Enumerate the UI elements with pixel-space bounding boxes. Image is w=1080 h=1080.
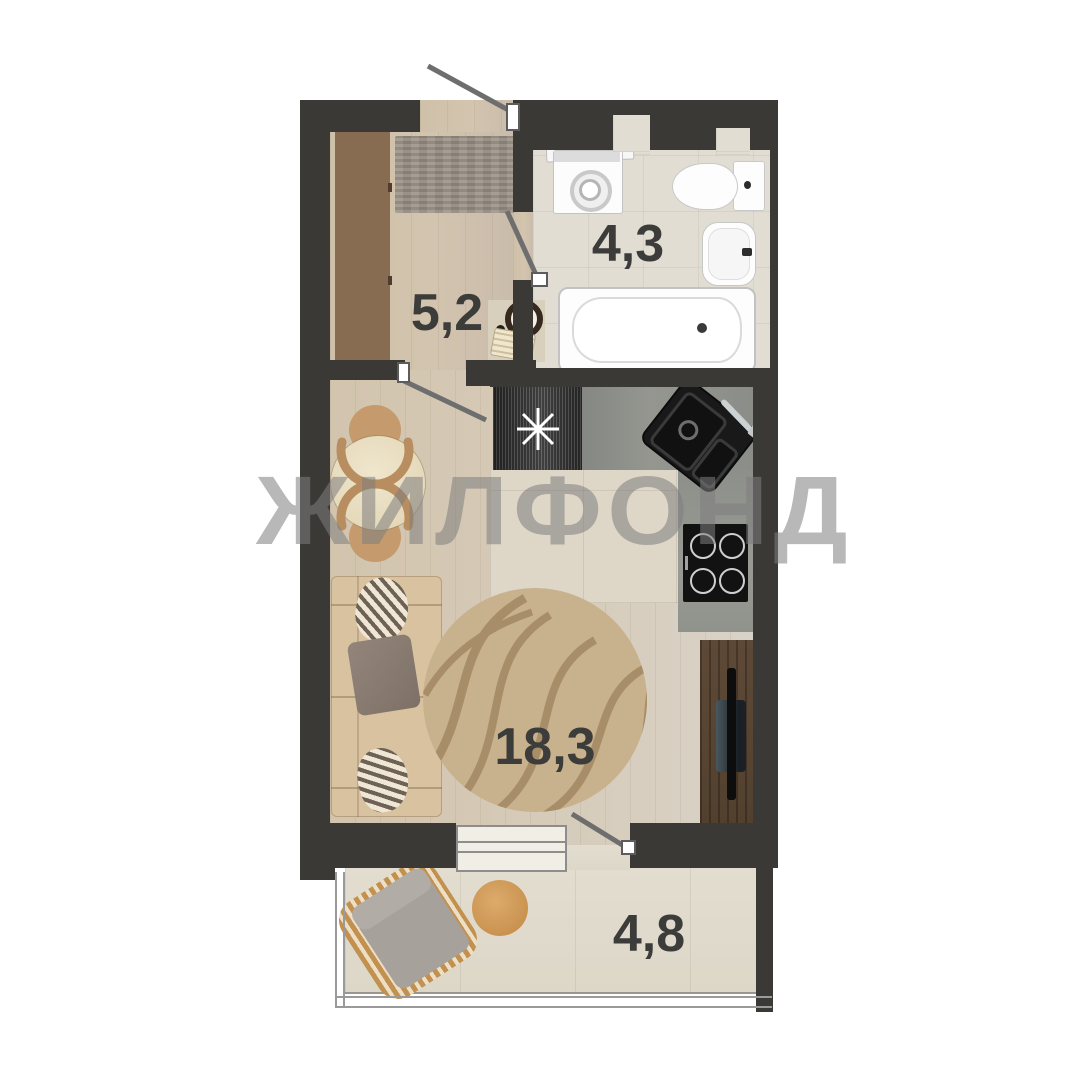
balcony-glazing-left — [343, 872, 345, 1008]
bathtub-drain — [697, 323, 707, 333]
washing-machine-drum-inner — [579, 179, 601, 201]
wall-kitchen-top — [490, 368, 778, 387]
wall-hall-bath-upper — [513, 130, 533, 212]
wall-bottom-left — [335, 823, 456, 868]
wall-hall-living-left — [330, 360, 405, 380]
hallway-area-label: 5,2 — [347, 287, 547, 339]
bathroom-niche-right — [716, 128, 750, 152]
balcony-door-hinge — [621, 840, 636, 855]
wall-bath-right — [770, 100, 778, 380]
balcony-glazing-bottom — [335, 1006, 772, 1008]
balcony-area-label: 4,8 — [549, 908, 749, 960]
wardrobe-handle — [388, 183, 392, 192]
balcony-glazing-bottom — [335, 996, 772, 998]
wall-right — [753, 368, 778, 868]
toilet-button — [744, 181, 751, 189]
wardrobe-handle — [388, 276, 392, 285]
bathroom-sink-faucet — [742, 248, 752, 256]
burner — [690, 568, 716, 594]
door-threshold-entry — [420, 100, 513, 132]
watermark: ЖИЛФОНД — [256, 462, 853, 559]
bathroom-door-hinge — [531, 272, 548, 287]
sofa-blanket — [347, 633, 422, 716]
washing-machine-panel — [554, 151, 620, 162]
toilet-bowl — [672, 163, 738, 210]
balcony-window-glazing-line — [458, 841, 565, 843]
entrance-door-hinge — [506, 103, 520, 131]
living-area-label: 18,3 — [445, 721, 645, 773]
burner — [719, 568, 745, 594]
wall-balcony-right — [756, 868, 773, 1012]
tv — [727, 668, 736, 800]
wall-bottom-right — [630, 823, 778, 868]
bathroom-niche-left — [613, 115, 650, 152]
door-threshold-balcony — [563, 845, 630, 870]
floorplan-canvas: 5,2 4,3 18,3 4,8 ЖИЛФОНД — [0, 0, 1080, 1080]
bathroom-area-label: 4,3 — [528, 218, 728, 270]
living-door-hinge — [397, 362, 410, 383]
balcony-glazing-left — [335, 872, 337, 1008]
wall-bottom-left-corner — [300, 823, 335, 880]
bathtub-basin — [572, 297, 742, 363]
balcony-table — [472, 880, 528, 936]
balcony-window — [456, 825, 567, 872]
entry-rug — [395, 136, 515, 213]
balcony-window-glazing-line — [458, 851, 565, 853]
